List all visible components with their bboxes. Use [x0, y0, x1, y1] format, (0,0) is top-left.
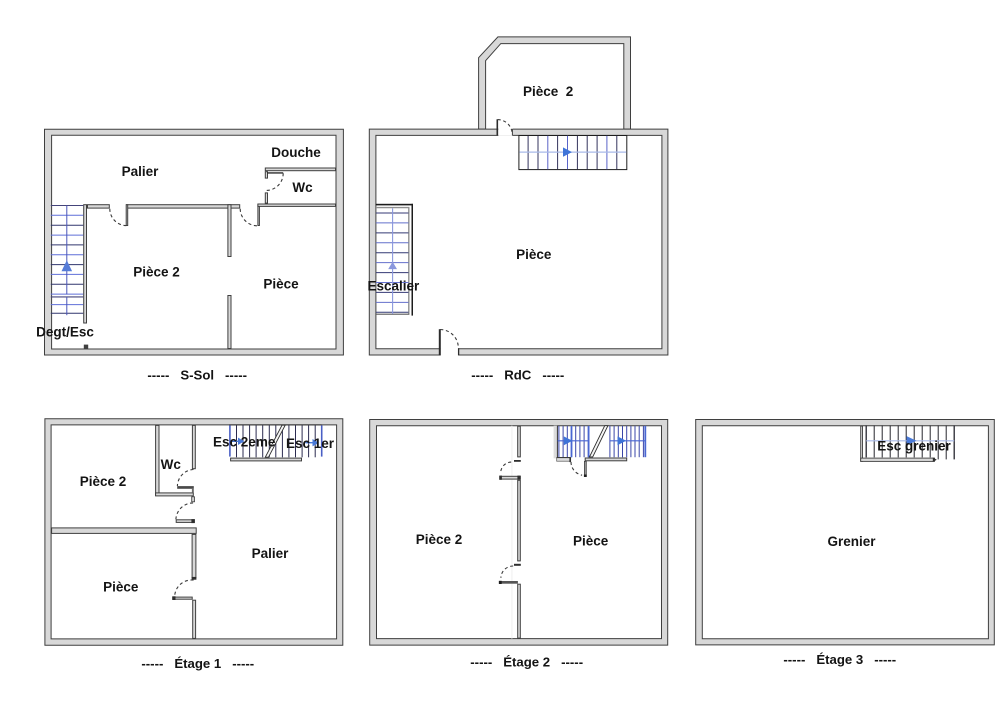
svg-text:----- RdC -----: ----- RdC ----- [471, 368, 564, 383]
svg-text:Pièce: Pièce [103, 579, 139, 594]
svg-text:Palier: Palier [252, 546, 290, 561]
svg-text:Palier: Palier [122, 164, 160, 179]
svg-text:----- Étage 2 -----: ----- Étage 2 ----- [470, 655, 583, 670]
svg-text:Escalier: Escalier [368, 279, 421, 294]
svg-text:Wc: Wc [161, 457, 182, 472]
svg-text:Pièce 2: Pièce 2 [80, 474, 127, 489]
svg-text:Pièce 2: Pièce 2 [133, 265, 180, 280]
svg-text:----- Étage 3 -----: ----- Étage 3 ----- [783, 652, 896, 667]
svg-text:Douche: Douche [271, 145, 321, 160]
svg-text:Wc: Wc [292, 180, 313, 195]
svg-text:Esc 2eme: Esc 2eme [213, 434, 276, 449]
svg-text:Pièce: Pièce [573, 534, 609, 549]
svg-text:Pièce 2: Pièce 2 [416, 532, 463, 547]
svg-text:Pièce: Pièce [516, 247, 552, 262]
svg-text:Pièce: Pièce [263, 277, 299, 292]
svg-text:----- Étage 1 -----: ----- Étage 1 ----- [141, 656, 254, 671]
svg-text:Degt/Esc: Degt/Esc [36, 325, 94, 340]
svg-text:Esc grenier: Esc grenier [877, 438, 951, 453]
svg-text:----- S-Sol -----: ----- S-Sol ----- [147, 368, 247, 383]
svg-text:Esc 1er: Esc 1er [286, 436, 335, 451]
svg-text:Pièce 2: Pièce 2 [523, 84, 573, 99]
svg-text:Grenier: Grenier [827, 534, 876, 549]
